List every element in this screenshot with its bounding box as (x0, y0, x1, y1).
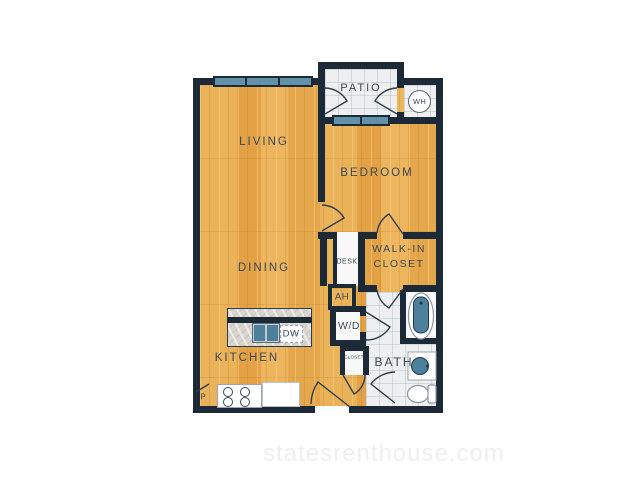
walkin-closet-label-line1: WALK-IN (372, 243, 426, 255)
stove-burner-2 (240, 387, 250, 397)
living-window-divider-1 (245, 77, 247, 86)
wall-bottom-right (349, 406, 443, 413)
wall-right (436, 78, 443, 413)
closet-label: CLOSET (344, 355, 363, 360)
air-handler-label: AH (335, 292, 349, 303)
wall-left (193, 78, 200, 413)
stove-burner-4 (240, 397, 250, 407)
water-heater: WH (408, 90, 431, 113)
wall-walkin-bottom-b (403, 285, 443, 292)
floor-plan: WH LIVING BEDROOM DINING KITCHEN PATIO B… (0, 0, 640, 480)
living-label: LIVING (239, 136, 289, 148)
wall-walkin-bottom-a (358, 285, 377, 292)
dishwasher-label: DW (283, 329, 300, 340)
bedroom-label: BEDROOM (340, 167, 413, 179)
wall-wd-right-stub-top (360, 306, 366, 316)
wall-dining-column (320, 232, 327, 286)
wall-desk-right (358, 232, 365, 292)
wall-bedroom-bottom-c (403, 232, 443, 239)
pantry-label: P (200, 393, 205, 402)
kitchen-sink-basin-right (267, 325, 278, 341)
patio-label: PATIO (340, 82, 381, 94)
wall-patio-left (318, 62, 325, 117)
kitchen-counter (262, 382, 300, 407)
watermark-text: statesrenthouse.com (263, 440, 505, 468)
kitchen-label: KITCHEN (215, 352, 279, 364)
living-window (213, 76, 313, 87)
desk-label: DESK (336, 259, 357, 266)
wall-closet-right (363, 346, 369, 375)
living-window-divider-2 (278, 77, 280, 86)
tub-platform (405, 292, 436, 339)
washer-dryer-label: W/D (338, 320, 360, 332)
dining-label: DINING (238, 262, 290, 274)
wall-wd-right-stub-bottom (360, 332, 366, 346)
wall-living-bedroom (318, 117, 325, 202)
stove-burner-1 (223, 387, 233, 397)
kitchen-sink-basin-left (254, 325, 265, 341)
bedroom-window-divider (360, 116, 362, 125)
wall-tub-left (400, 290, 406, 342)
wall-patio-right-upper (397, 62, 404, 88)
wall-top-wh-nook (404, 78, 443, 85)
bath-label: BATH (374, 355, 413, 369)
water-heater-label: WH (413, 97, 426, 106)
wall-patio-top (318, 62, 404, 69)
stove-burner-3 (223, 397, 233, 407)
wall-tub-bottom (400, 338, 443, 344)
wall-closet-left (340, 346, 345, 375)
walkin-closet-label-line2: CLOSET (373, 258, 424, 270)
